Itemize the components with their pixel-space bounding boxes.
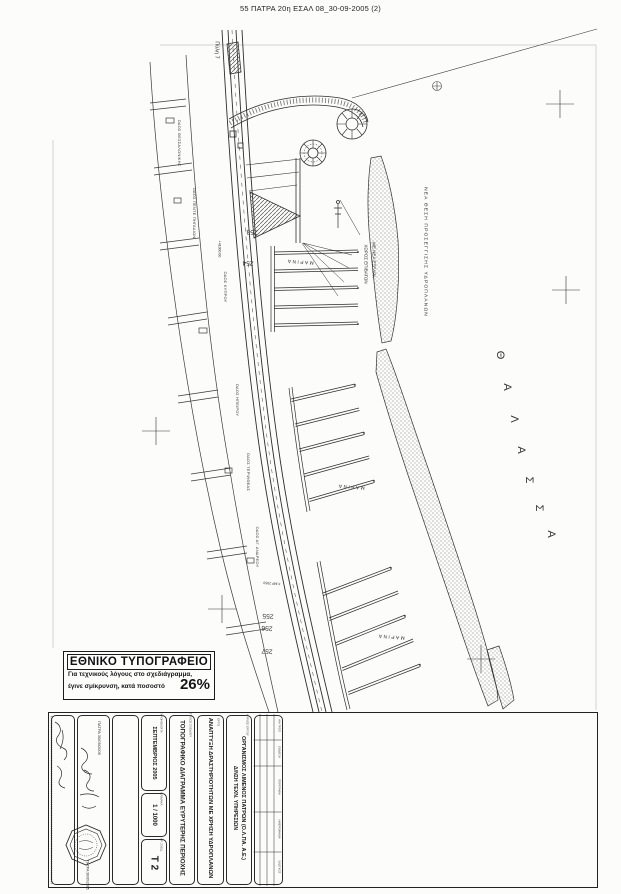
approval-date-bottom: ΠΑΤΡΑ 30/09/2005 — [85, 860, 89, 889]
sea-label-letter: Θ — [494, 351, 506, 360]
revision-header: ΕΛΕΓΧΟΣ — [278, 861, 281, 874]
reduction-stamp-text: Για τεχνικούς λόγους στο σχεδιάγραμμα, έ… — [64, 671, 214, 691]
bearing-line — [352, 29, 597, 98]
owner-line1: ΟΡΓΑΝΙΣΜΟΣ ΛΙΜΕΝΟΣ ΠΑΤΡΩΝ (Ο.Λ.ΠΑ. Α.Ε.) — [239, 736, 247, 860]
titleblock-empty-strip — [112, 715, 139, 885]
street-label: ΟΔΟΣ ΠΕΝΤΕ ΠΗΓΑΔΙΩΝ — [192, 188, 197, 239]
number-value: Τ 2 — [149, 856, 160, 870]
sea-label-letter: Λ — [508, 415, 520, 422]
sea-label-letter: Α — [545, 530, 557, 537]
drawing-title-value: ΤΟΠΟΓΡΑΦΙΚΟ ΔΙΑΓΡΑΜΜΑ ΕΥΡΥΤΕΡΗΣ ΠΕΡΙΟΧΗΣ — [179, 720, 186, 876]
revision-table — [254, 715, 283, 885]
coordinate-label: +41000.00 — [217, 241, 221, 258]
sea-label-letter: Σ — [523, 477, 535, 484]
drawing-title-header: ΤΙΤΛΟΣ ΣΧΕΔΙΟΥ — [189, 713, 192, 737]
street-label: ΟΔΟΣ ΘΕΣΣΑΛΟΝΙΚΗΣ — [177, 120, 182, 167]
date-value: ΣΕΠΤΕΜΒΡΙΟΣ 2005 — [151, 726, 157, 779]
registration-crosses — [142, 90, 580, 673]
reduction-stamp: ΕΘΝΙΚΟ ΤΥΠΟΓΡΑΦΕΙΟ Για τεχνικούς λόγους … — [63, 651, 215, 700]
project-value: ΑΝΑΠΤΥΞΗ ΔΡΑΣΤΗΡΙΟΤΗΤΩΝ ΜΕ ΧΡΗΣΗ ΥΔΡΟΠΛΑ… — [207, 718, 213, 879]
marina-piers — [271, 246, 421, 710]
titleblock-approval-strip — [77, 715, 110, 885]
block-number: 254 — [242, 259, 253, 267]
gate-label: Πύλη 7 — [214, 41, 220, 58]
scanned-drawing-sheet: 55 ΠΑΤΡΑ 20η ΕΣΑΛ 08_30-09-2005 (2) — [0, 0, 621, 894]
titleblock-signatures-strip — [51, 715, 75, 885]
street-label: ΟΔΟΣ ΑΓ. ΑΝΔΡΕΟΥ — [255, 527, 260, 568]
revision-header: Α/Α ΤΡΟΠ. — [278, 719, 281, 732]
sea-label-letter: Σ — [533, 505, 545, 512]
owner-value: ΟΡΓΑΝΙΣΜΟΣ ΛΙΜΕΝΟΣ ΠΑΤΡΩΝ (Ο.Λ.ΠΑ. Α.Ε.)… — [231, 736, 247, 860]
street-label: ΟΔΟΣ ΤΕΡΨΙΘΕΑΣ — [246, 453, 251, 491]
approval-date-top: ΠΑΤΡΑ 30/09/2005 — [97, 721, 102, 755]
project-header: ΕΡΓΟ — [217, 718, 220, 726]
title-block: ΠΑΤΡΑ 30/09/2005 ΠΑΤΡΑ 30/09/2005 ΧΡΟΝΟΛ… — [48, 712, 598, 888]
block-number: 257 — [261, 647, 272, 655]
scale-header: ΚΛΙΜΑΚΑ — [160, 792, 163, 805]
block-number: 255 — [262, 612, 273, 620]
shore-road — [222, 30, 332, 712]
scale-value: 1 / 1000 — [151, 804, 157, 826]
reduction-percent: 26% — [180, 679, 210, 691]
number-header: ΑΡ. ΣΧΕΔ. — [160, 838, 163, 852]
owner-header: ΚΥΡΙΟΣ ΕΡΓΟΥ — [246, 714, 249, 736]
seaplane-approach-label: ΝΕΑ ΘΕΣΗ ΠΡΟΣΕΓΓΙΣΗΣ ΥΔΡΟΠΛΑΝΩΝ — [423, 187, 429, 317]
street-label: ΟΔΟΣ ΗΠΕΙΡΟΥ — [235, 384, 240, 417]
reduction-stamp-title: ΕΘΝΙΚΟ ΤΥΠΟΓΡΑΦΕΙΟ — [67, 654, 211, 670]
harbour-pier-complex — [227, 42, 368, 296]
date-header: ΧΡΟΝΟΛΟΓΙΑ — [160, 713, 163, 733]
reduction-stamp-line2: έγινε σμίκρυνση, κατά ποσοστό — [68, 683, 165, 691]
block-number: 256 — [261, 624, 272, 632]
city-blocks — [150, 55, 278, 712]
street-label: ΟΔΟΣ ΚΥΠΡΟΥ — [223, 271, 228, 302]
revision-header: ΕΝΔΕΙΞΗ — [278, 746, 281, 758]
sheet-frame — [53, 45, 596, 710]
breakwaters — [368, 156, 514, 709]
sea-label-letter: Α — [515, 446, 527, 453]
passenger-area-label-line1: ΧΩΡΟΣ ΕΠΙΒΑΤΩΝ — [364, 244, 369, 283]
revision-header: ΗΜΕΡΟΜΗΝΙΑ — [278, 820, 281, 839]
sea-label-letter: Α — [501, 383, 513, 390]
passenger-area-label-line2: ΜΕ ΝΕΑ ΕΞΕΔΡΑ — [372, 242, 377, 278]
owner-line2: Δ/ΝΣΗ ΤΕΧΝ. ΥΠΗΡΕΣΙΩΝ — [231, 736, 239, 860]
revision-header: ΠΕΡΙΓΡΑΦΗ — [278, 779, 281, 795]
block-number: 253 — [246, 228, 257, 236]
